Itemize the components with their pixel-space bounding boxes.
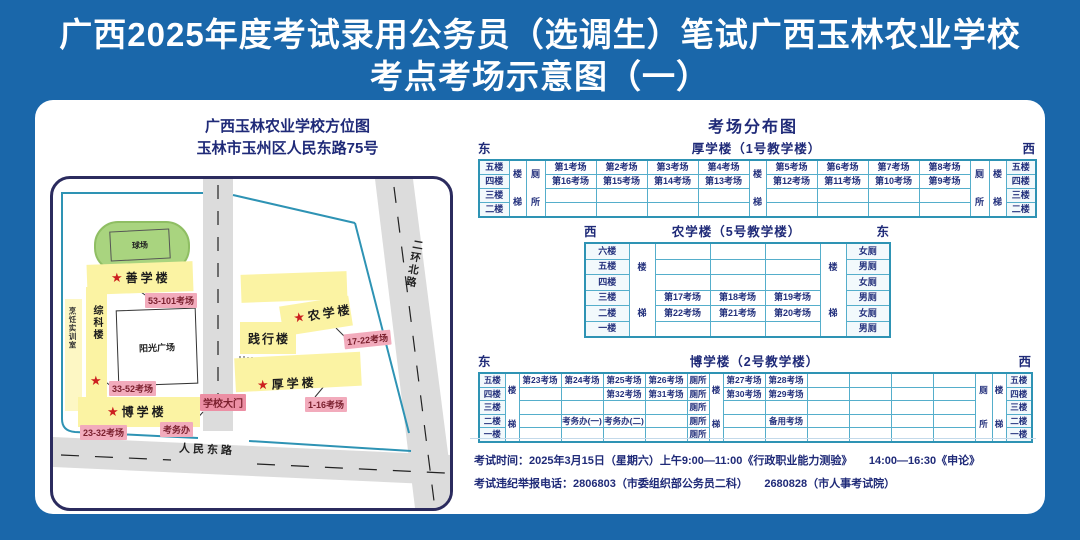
room-cell: 厕所 bbox=[687, 428, 709, 442]
east-road bbox=[53, 437, 450, 485]
dist-table-nongxue: 六楼楼梯楼梯女厕五楼男厕四楼女厕三楼第17考场第18考场第19考场男厕二楼第22… bbox=[584, 242, 891, 338]
room-cell bbox=[561, 387, 603, 401]
room-cell bbox=[710, 321, 765, 337]
room-cell bbox=[807, 414, 849, 428]
room-cell bbox=[807, 387, 849, 401]
campus-map: 球场 阳光广场 ★善学楼 综科楼 ★ 烹饪实训室 ★博学楼 践行楼 ★农学楼 ★… bbox=[50, 176, 453, 511]
room-cell: 第20考场 bbox=[765, 306, 820, 322]
floor-cell: 五楼 bbox=[1006, 160, 1036, 175]
room-range-boxue: 23-32考场 bbox=[80, 425, 127, 440]
room-cell bbox=[698, 189, 749, 203]
gate-label: 学校大门 bbox=[200, 394, 246, 411]
floor-cell: 六楼 bbox=[585, 243, 629, 259]
room-cell: 第3考场 bbox=[647, 160, 698, 175]
room-cell bbox=[545, 189, 596, 203]
room-cell: 第11考场 bbox=[817, 175, 868, 189]
room-cell bbox=[561, 401, 603, 415]
stair-cell: 楼梯 bbox=[989, 160, 1006, 217]
floor-cell: 三楼 bbox=[479, 189, 509, 203]
corner-label-left: 西 bbox=[584, 221, 597, 240]
room-cell: 第19考场 bbox=[765, 290, 820, 306]
room-cell bbox=[655, 243, 710, 259]
room-cell bbox=[655, 275, 710, 291]
page-title: 广西2025年度考试录用公务员（选调生）笔试广西玉林农业学校 考点考场示意图（一… bbox=[0, 14, 1080, 98]
room-cell bbox=[766, 203, 817, 218]
room-cell: 厕所 bbox=[687, 414, 709, 428]
room-cell bbox=[765, 401, 807, 415]
star-icon: ★ bbox=[257, 377, 272, 393]
floor-cell: 四楼 bbox=[479, 175, 509, 189]
floor-cell: 男厕 bbox=[846, 259, 890, 275]
room-cell: 考务办(一) bbox=[561, 414, 603, 428]
room-cell bbox=[891, 414, 933, 428]
floor-cell: 二楼 bbox=[479, 203, 509, 218]
table-title: 农学楼（5号教学楼） bbox=[672, 221, 801, 240]
corner-label-right: 东 bbox=[876, 221, 889, 240]
room-cell: 第31考场 bbox=[645, 387, 687, 401]
room-cell: 厕所 bbox=[687, 373, 709, 387]
exam-office-label: 考务办 bbox=[160, 422, 193, 437]
room-cell bbox=[849, 387, 891, 401]
table-block-houxue: 东 厚学楼（1号教学楼） 西 五楼楼梯厕所第1考场第2考场第3考场第4考场楼梯第… bbox=[478, 138, 1035, 218]
floor-cell: 二楼 bbox=[479, 414, 505, 428]
room-cell bbox=[723, 401, 765, 415]
exam-time-note: 考试时间：2025年3月15日（星期六）上午9:00—11:00《行政职业能力测… bbox=[474, 452, 1040, 468]
floor-cell: 四楼 bbox=[585, 275, 629, 291]
floor-cell: 四楼 bbox=[1006, 175, 1036, 189]
star-icon: ★ bbox=[107, 404, 122, 419]
floor-cell: 五楼 bbox=[1006, 373, 1032, 387]
room-cell: 第18考场 bbox=[710, 290, 765, 306]
star-icon: ★ bbox=[90, 373, 102, 389]
room-cell: 备用考场 bbox=[765, 414, 807, 428]
room-cell bbox=[710, 259, 765, 275]
room-cell: 第25考场 bbox=[603, 373, 645, 387]
distribution-section: 考场分布图 东 厚学楼（1号教学楼） 西 五楼楼梯厕所第1考场第2考场第3考场第… bbox=[462, 108, 1044, 508]
label-houxue: ★厚学楼 bbox=[257, 373, 317, 393]
east-road-label: 人民东路 bbox=[179, 440, 236, 458]
room-cell bbox=[891, 373, 933, 387]
map-title-line1: 广西玉林农业学校方位图 bbox=[120, 116, 455, 138]
star-icon: ★ bbox=[111, 270, 126, 285]
room-cell: 第2考场 bbox=[596, 160, 647, 175]
floor-cell: 二楼 bbox=[1006, 203, 1036, 218]
room-cell bbox=[603, 428, 645, 442]
room-cell bbox=[766, 189, 817, 203]
room-cell bbox=[655, 259, 710, 275]
room-cell: 第32考场 bbox=[603, 387, 645, 401]
room-cell: 考务办(二) bbox=[603, 414, 645, 428]
content-panel: 广西玉林农业学校方位图 玉林市玉州区人民东路75号 bbox=[35, 100, 1045, 514]
room-cell bbox=[933, 387, 975, 401]
table-block-boxue: 东 博学楼（2号教学楼） 西 五楼楼梯第23考场第24考场第25考场第26考场厕… bbox=[478, 351, 1031, 443]
room-cell bbox=[868, 203, 919, 218]
room-cell: 第14考场 bbox=[647, 175, 698, 189]
room-cell bbox=[849, 414, 891, 428]
room-cell: 第28考场 bbox=[765, 373, 807, 387]
room-cell bbox=[933, 414, 975, 428]
floor-cell: 三楼 bbox=[1006, 401, 1032, 415]
distribution-heading: 考场分布图 bbox=[462, 113, 1044, 137]
room-cell: 第22考场 bbox=[655, 306, 710, 322]
room-cell bbox=[765, 275, 820, 291]
room-cell bbox=[561, 428, 603, 442]
room-cell bbox=[891, 387, 933, 401]
stair-cell: 楼梯 bbox=[629, 243, 655, 337]
floor-cell: 女厕 bbox=[846, 306, 890, 322]
room-cell: 第23考场 bbox=[519, 373, 561, 387]
room-cell bbox=[723, 428, 765, 442]
room-cell bbox=[849, 428, 891, 442]
floor-cell: 女厕 bbox=[846, 275, 890, 291]
room-cell bbox=[919, 189, 970, 203]
room-cell bbox=[817, 189, 868, 203]
stair-cell: 楼梯 bbox=[820, 243, 846, 337]
page-title-line2: 考点考场示意图（一） bbox=[0, 56, 1080, 98]
room-range-houxue: 1-16考场 bbox=[305, 397, 347, 412]
floor-cell: 二楼 bbox=[585, 306, 629, 322]
room-cell bbox=[807, 401, 849, 415]
room-cell bbox=[645, 428, 687, 442]
room-cell bbox=[807, 373, 849, 387]
stair-cell: 楼梯 bbox=[709, 373, 723, 442]
corner-label-right: 西 bbox=[1022, 138, 1035, 157]
corner-label-right: 西 bbox=[1018, 351, 1031, 370]
floor-cell: 三楼 bbox=[1006, 189, 1036, 203]
floor-cell: 一楼 bbox=[479, 428, 505, 442]
room-cell: 第16考场 bbox=[545, 175, 596, 189]
floor-cell: 男厕 bbox=[846, 290, 890, 306]
table-title: 厚学楼（1号教学楼） bbox=[692, 138, 821, 157]
map-title: 广西玉林农业学校方位图 玉林市玉州区人民东路75号 bbox=[120, 116, 455, 160]
room-cell bbox=[765, 259, 820, 275]
label-zongke: 综科楼 bbox=[89, 305, 104, 341]
room-cell bbox=[596, 189, 647, 203]
room-cell bbox=[933, 373, 975, 387]
floor-cell: 三楼 bbox=[585, 290, 629, 306]
room-cell bbox=[765, 321, 820, 337]
room-cell bbox=[645, 414, 687, 428]
room-cell bbox=[891, 428, 933, 442]
label-boxue: ★博学楼 bbox=[107, 403, 167, 420]
notes-divider bbox=[470, 438, 1036, 439]
room-cell bbox=[765, 428, 807, 442]
stair-cell: 楼梯 bbox=[509, 160, 526, 217]
room-cell bbox=[647, 203, 698, 218]
room-cell: 厕所 bbox=[687, 401, 709, 415]
stadium-label: 球场 bbox=[132, 239, 149, 251]
corner-label-left: 东 bbox=[478, 351, 491, 370]
room-cell bbox=[891, 401, 933, 415]
map-title-line2: 玉林市玉州区人民东路75号 bbox=[120, 138, 455, 160]
toilet-cell: 厕所 bbox=[970, 160, 989, 217]
room-cell: 第26考场 bbox=[645, 373, 687, 387]
room-cell: 第7考场 bbox=[868, 160, 919, 175]
room-cell bbox=[723, 414, 765, 428]
room-cell: 第13考场 bbox=[698, 175, 749, 189]
room-cell bbox=[603, 401, 645, 415]
floor-cell: 四楼 bbox=[1006, 387, 1032, 401]
room-cell: 第4考场 bbox=[698, 160, 749, 175]
room-cell: 第17考场 bbox=[655, 290, 710, 306]
floor-cell: 五楼 bbox=[479, 373, 505, 387]
floor-cell: 五楼 bbox=[585, 259, 629, 275]
stadium-track: 球场 bbox=[109, 228, 170, 261]
room-cell bbox=[849, 401, 891, 415]
room-cell bbox=[933, 428, 975, 442]
room-cell: 第8考场 bbox=[919, 160, 970, 175]
room-cell: 第6考场 bbox=[817, 160, 868, 175]
room-cell: 第5考场 bbox=[766, 160, 817, 175]
table-title: 博学楼（2号教学楼） bbox=[690, 351, 819, 370]
stair-cell: 楼梯 bbox=[749, 160, 766, 217]
room-cell bbox=[596, 203, 647, 218]
room-cell bbox=[647, 189, 698, 203]
floor-cell: 女厕 bbox=[846, 243, 890, 259]
room-cell bbox=[645, 401, 687, 415]
room-cell bbox=[519, 414, 561, 428]
floor-cell: 二楼 bbox=[1006, 414, 1032, 428]
plaza: 阳光广场 bbox=[116, 308, 199, 387]
table-mount: 五楼楼梯第23考场第24考场第25考场第26考场厕所楼梯第27考场第28考场厕所… bbox=[478, 372, 1031, 443]
room-cell bbox=[698, 203, 749, 218]
room-cell bbox=[710, 275, 765, 291]
floor-cell: 一楼 bbox=[1006, 428, 1032, 442]
toilet-cell: 厕所 bbox=[975, 373, 992, 442]
room-cell bbox=[817, 203, 868, 218]
room-cell bbox=[519, 428, 561, 442]
room-cell bbox=[655, 321, 710, 337]
room-range-zongke: 33-52考场 bbox=[109, 381, 156, 396]
plaza-label: 阳光广场 bbox=[139, 340, 175, 354]
floor-cell: 三楼 bbox=[479, 401, 505, 415]
corner-label-left: 东 bbox=[478, 138, 491, 157]
dist-table-houxue: 五楼楼梯厕所第1考场第2考场第3考场第4考场楼梯第5考场第6考场第7考场第8考场… bbox=[478, 159, 1037, 218]
room-cell bbox=[545, 203, 596, 218]
room-range-shanxue: 53-101考场 bbox=[145, 293, 197, 308]
room-cell: 第24考场 bbox=[561, 373, 603, 387]
floor-cell: 男厕 bbox=[846, 321, 890, 337]
room-cell bbox=[710, 243, 765, 259]
floor-cell: 一楼 bbox=[585, 321, 629, 337]
table-block-nongxue: 西 农学楼（5号教学楼） 东 六楼楼梯楼梯女厕五楼男厕四楼女厕三楼第17考场第1… bbox=[584, 221, 889, 338]
page-title-line1: 广西2025年度考试录用公务员（选调生）笔试广西玉林农业学校 bbox=[0, 14, 1080, 56]
room-cell: 第30考场 bbox=[723, 387, 765, 401]
room-cell: 第9考场 bbox=[919, 175, 970, 189]
floor-cell: 四楼 bbox=[479, 387, 505, 401]
room-cell: 第1考场 bbox=[545, 160, 596, 175]
room-cell bbox=[849, 373, 891, 387]
room-cell bbox=[919, 203, 970, 218]
room-cell: 第10考场 bbox=[868, 175, 919, 189]
label-shanxue: ★善学楼 bbox=[111, 269, 171, 286]
room-cell bbox=[765, 243, 820, 259]
room-cell: 第27考场 bbox=[723, 373, 765, 387]
room-cell: 第12考场 bbox=[766, 175, 817, 189]
room-cell bbox=[519, 401, 561, 415]
toilet-cell: 厕所 bbox=[526, 160, 545, 217]
room-cell: 第21考场 bbox=[710, 306, 765, 322]
report-phone-note: 考试违纪举报电话：2806803（市委组织部公务员二科） 2680828（市人事… bbox=[474, 475, 1040, 491]
room-cell bbox=[933, 401, 975, 415]
label-jianxing: 践行楼 bbox=[248, 330, 290, 347]
table-mount: 五楼楼梯厕所第1考场第2考场第3考场第4考场楼梯第5考场第6考场第7考场第8考场… bbox=[478, 159, 1035, 218]
room-cell: 第29考场 bbox=[765, 387, 807, 401]
room-cell bbox=[868, 189, 919, 203]
room-cell: 第15考场 bbox=[596, 175, 647, 189]
room-cell bbox=[807, 428, 849, 442]
stair-cell: 楼梯 bbox=[505, 373, 519, 442]
room-cell: 厕所 bbox=[687, 387, 709, 401]
label-pengren: 烹饪实训室 bbox=[67, 307, 78, 350]
table-mount: 六楼楼梯楼梯女厕五楼男厕四楼女厕三楼第17考场第18考场第19考场男厕二楼第22… bbox=[584, 242, 889, 338]
dist-table-boxue: 五楼楼梯第23考场第24考场第25考场第26考场厕所楼梯第27考场第28考场厕所… bbox=[478, 372, 1033, 443]
floor-cell: 五楼 bbox=[479, 160, 509, 175]
room-cell bbox=[519, 387, 561, 401]
stair-cell: 楼梯 bbox=[992, 373, 1006, 442]
